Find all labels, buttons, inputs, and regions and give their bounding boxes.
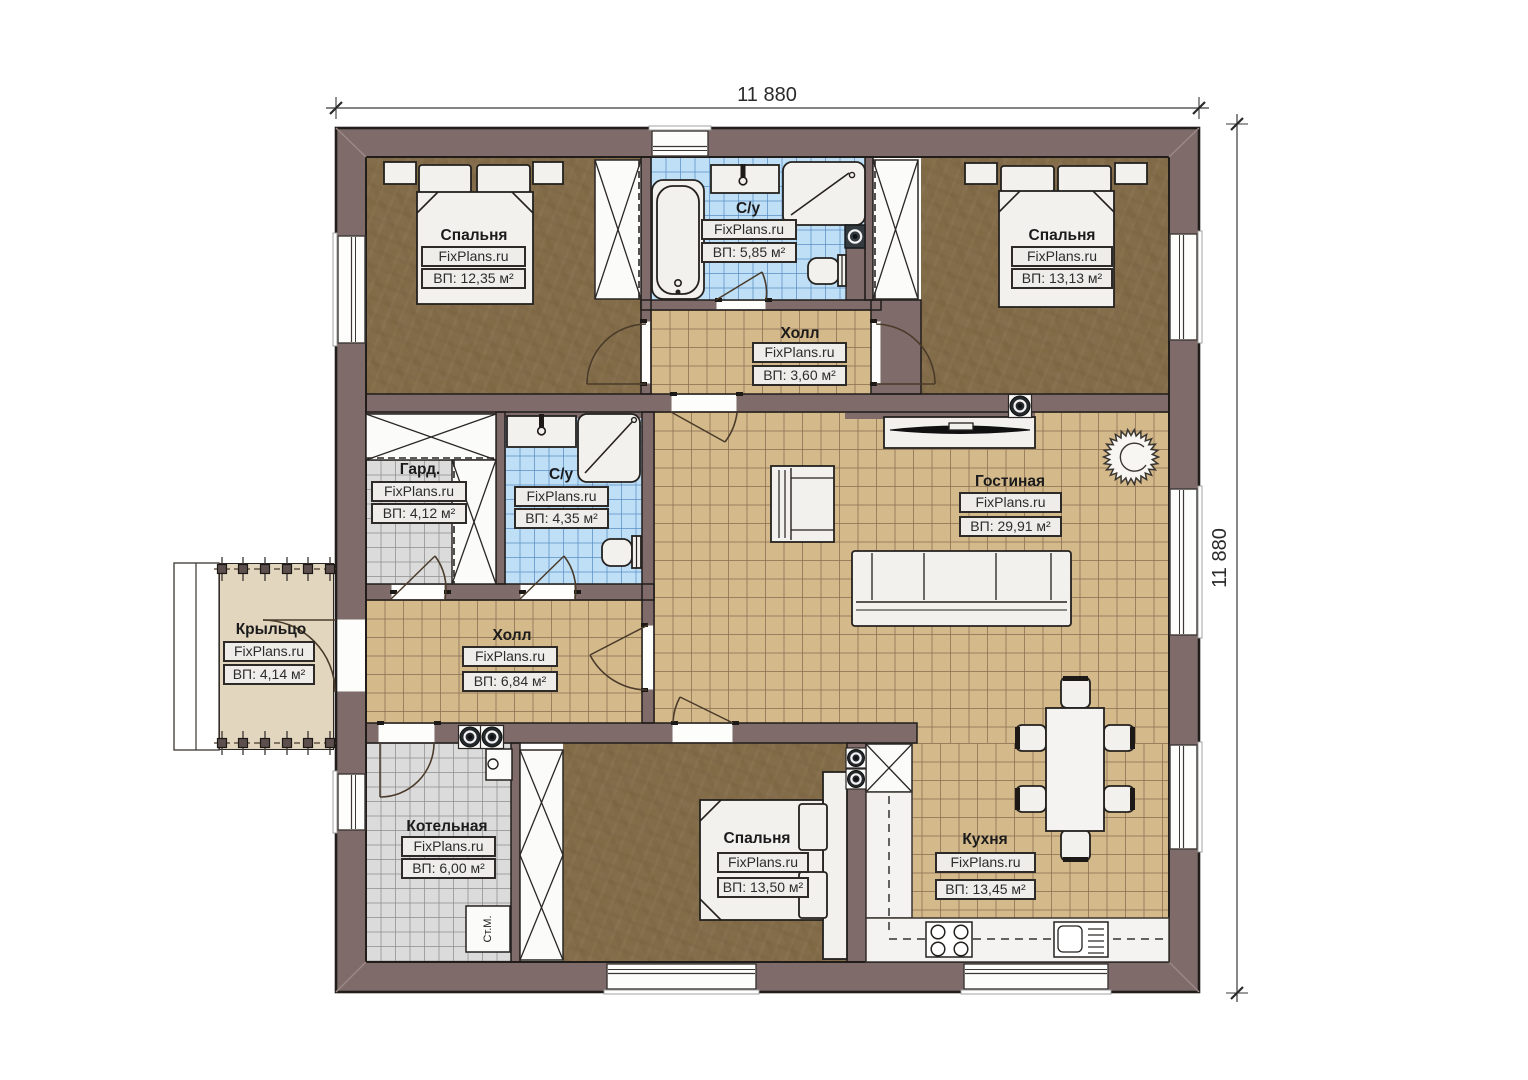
svg-text:11 880: 11 880 xyxy=(737,84,797,106)
svg-text:Ст.М.: Ст.М. xyxy=(482,915,494,942)
svg-text:11 880: 11 880 xyxy=(1209,528,1231,588)
